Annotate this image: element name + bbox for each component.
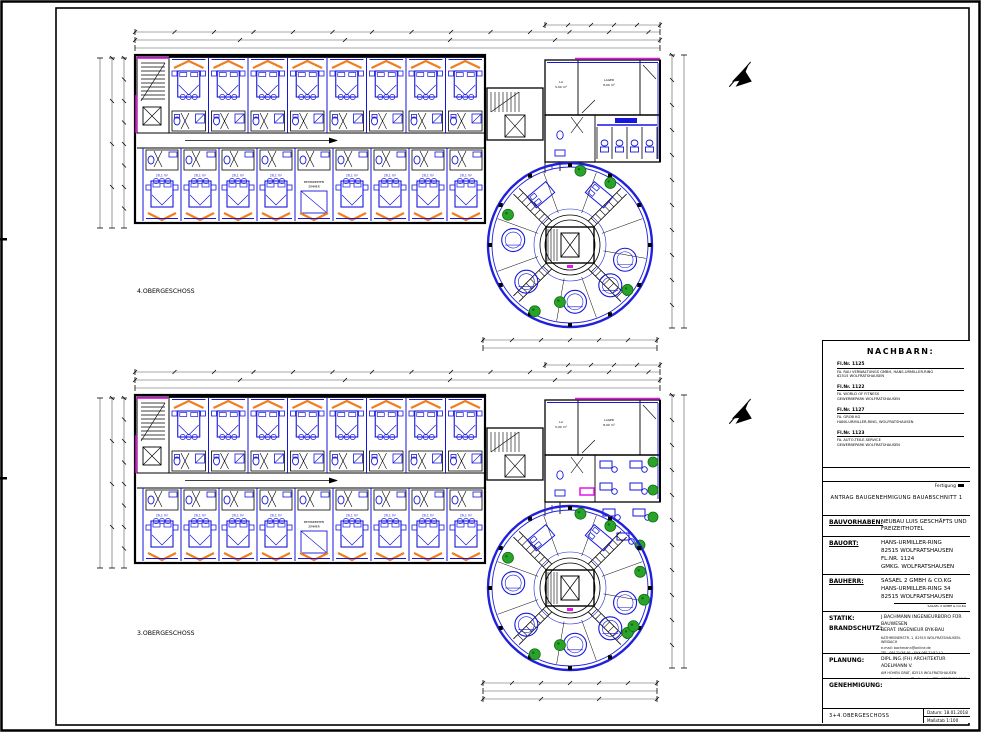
neighbor-line: HANS-URMILLER-RING, WOLFRATSHAUSEN (837, 420, 964, 425)
room-area-label: 26,1 m² (270, 514, 283, 518)
bauort-line: GMKG. WOLFRATSHAUSEN (881, 564, 954, 572)
bauherr-stamp: SASAEL 2 GMBH & CO.KG (894, 603, 966, 608)
lager-room-label: 8,00 m² (603, 423, 616, 427)
nachbarn-title: NACHBARN: (837, 347, 964, 356)
floor-label-og4: 4.OBERGESCHOSS (137, 288, 195, 295)
neighbor-flnr: Fl.Nr. 1122 (837, 385, 964, 390)
fertigung-label: Fertigung (829, 484, 964, 489)
rule (837, 436, 964, 437)
antrag-title: ANTRAG BAUGENEHMIGUNG BAUABSCHNITT 1 (829, 495, 964, 501)
neighbor-line: 82515 WOLFRATSHAUSEN (837, 374, 964, 379)
brandschutz-label: BRANDSCHUTZ: (829, 625, 881, 632)
bauort-row: BAUORT: HANS-URMILLER-RING 82515 WOLFRAT… (823, 536, 970, 574)
room-area-label: 26,1 m² (232, 174, 245, 178)
bauort-line: FL.NR. 1124 (881, 556, 954, 564)
bauvorhaben-label: BAUVORHABEN: (829, 519, 881, 537)
title-block: NACHBARN: Fl.Nr. 1125 FA. RAU VERWALTUNG… (822, 340, 970, 723)
rule (837, 390, 964, 391)
room-area-label: 26,1 m² (384, 514, 397, 518)
bauherr-line: HANS-URMILLER-RING 34 (881, 586, 953, 594)
sheet-name: 3+4.OBERGESCHOSS (823, 709, 923, 723)
plan-text: ZIMMER (308, 525, 319, 529)
floor-label-og3: 3.OBERGESCHOSS (137, 630, 195, 637)
la-room-label: 5,00 m² (555, 85, 568, 89)
spacer-section (823, 467, 970, 481)
sheet-scale: Maßstab 1:100 (924, 716, 970, 723)
fertigung-mark (958, 484, 964, 487)
bauherr-line: SASAEL 2 GMBH & CO.KG (881, 578, 953, 586)
room-area-label: 26,1 m² (384, 174, 397, 178)
room-area-label: 26,1 m² (460, 514, 473, 518)
neighbor-flnr: Fl.Nr. 1123 (837, 431, 964, 436)
statik-line: BERAT. INGENIEUR BYK-BAU (881, 628, 967, 634)
titleblock-footer: 3+4.OBERGESCHOSS Datum: 18.01.2018 Maßst… (823, 708, 970, 723)
neighbor-flnr: Fl.Nr. 1125 (837, 362, 964, 367)
rule (837, 368, 964, 369)
bauort-line: 82515 WOLFRATSHAUSEN (881, 548, 954, 556)
plan-text: BEHINDERTEN (304, 180, 324, 184)
neighbor-entry: Fl.Nr. 1125 FA. RAU VERWALTUNGS GMBH, HA… (837, 362, 964, 379)
rule (837, 413, 964, 414)
planung-line: DIPL.ING.(FH) ARCHITEKTUR ADELMANN V. (881, 657, 967, 670)
room-area-label: 26,1 m² (232, 514, 245, 518)
room-area-label: 26,1 m² (460, 174, 473, 178)
bauort-label: BAUORT: (829, 540, 881, 574)
nachbarn-section: NACHBARN: Fl.Nr. 1125 FA. RAU VERWALTUNG… (823, 341, 970, 467)
bauvorhaben-line: FREIZEITHOTEL (881, 526, 967, 534)
lager-room-label: 8,00 m² (603, 83, 616, 87)
bauherr-label: BAUHERR: (829, 578, 881, 601)
neighbor-line: GEWERBEPARK WOLFRATSHAUSEN (837, 443, 964, 448)
planung-label: PLANUNG: (829, 657, 881, 678)
statik-small-line: e-mail: bachmann@online.de (881, 646, 967, 651)
lager-room-label: LAGER (604, 418, 614, 422)
neighbor-entry: Fl.Nr. 1123 FA. AUTO-TEILE-SERVICE GEWER… (837, 431, 964, 448)
neighbor-flnr: Fl.Nr. 1127 (837, 408, 964, 413)
genehmigung-row: GENEHMIGUNG: (823, 678, 970, 708)
neighbor-line: GEWERBEPARK WOLFRATSHAUSEN (837, 397, 964, 402)
bauherr-row: BAUHERR: SASAEL 2 GMBH & CO.KG HANS-URMI… (823, 574, 970, 611)
statik-small-line: KATHREINERSTR. 1, 82515 WOLFRATSHAUSEN-W… (881, 636, 967, 645)
drawing-sheet: 26,1 m²26,1 m²26,1 m²26,1 m²BEHINDERTENZ… (0, 0, 981, 732)
statik-line: J.BACHMANN INGENIEURBÜRO FÜR BAUWESEN (881, 615, 967, 628)
neighbor-entry: Fl.Nr. 1122 FA. WORLD OF FITNESS GEWERBE… (837, 385, 964, 402)
room-area-label: 26,1 m² (194, 514, 207, 518)
room-area-label: 26,1 m² (194, 174, 207, 178)
plan-text: BEHINDERTEN (304, 520, 324, 524)
plan-text: ZIMMER (308, 185, 319, 189)
neighbor-entry: Fl.Nr. 1127 FA. GROB KG HANS-URMILLER-RI… (837, 408, 964, 425)
planung-small-line: AM HOHEN GRAT, 82515 WOLFRATSHAUSEN (881, 671, 967, 676)
planung-row: PLANUNG: DIPL.ING.(FH) ARCHITEKTUR ADELM… (823, 653, 970, 678)
genehmigung-label: GENEHMIGUNG: (829, 682, 881, 708)
la-room-label: 5,00 m² (555, 425, 568, 429)
bauort-line: HANS-URMILLER-RING (881, 540, 954, 548)
room-area-label: 26,1 m² (270, 174, 283, 178)
bauherr-line: 82515 WOLFRATSHAUSEN (881, 594, 953, 602)
antrag-section: Fertigung ANTRAG BAUGENEHMIGUNG BAUABSCH… (823, 481, 970, 515)
room-area-label: 26,1 m² (156, 174, 169, 178)
room-area-label: 26,1 m² (422, 174, 435, 178)
bauvorhaben-line: NEUBAU LUIS GESCHÄFTS UND (881, 519, 967, 527)
room-area-label: 26,1 m² (422, 514, 435, 518)
statik-row: STATIK: BRANDSCHUTZ: J.BACHMANN INGENIEU… (823, 611, 970, 653)
statik-label: STATIK: (829, 615, 881, 622)
bauvorhaben-row: BAUVORHABEN: NEUBAU LUIS GESCHÄFTS UND F… (823, 515, 970, 537)
room-area-label: 26,1 m² (346, 514, 359, 518)
lager-room-label: LAGER (604, 78, 614, 82)
room-area-label: 26,1 m² (346, 174, 359, 178)
room-area-label: 26,1 m² (156, 514, 169, 518)
